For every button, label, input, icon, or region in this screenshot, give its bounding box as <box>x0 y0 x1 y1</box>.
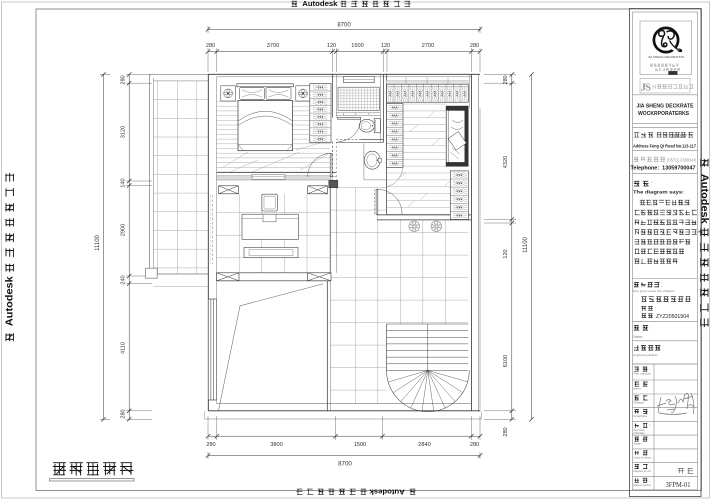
svg-text:JIA SHENG DECKRATE: JIA SHENG DECKRATE <box>637 103 694 109</box>
svg-text:1500: 1500 <box>351 43 363 49</box>
svg-text:Part number:: Part number: <box>634 372 652 376</box>
svg-text:3800: 3800 <box>270 442 282 448</box>
svg-text:2900: 2900 <box>121 224 127 236</box>
svg-text:120: 120 <box>381 43 390 49</box>
svg-text:Diagram do not:: Diagram do not: <box>634 469 652 473</box>
svg-text:Item:: Item: <box>634 387 642 391</box>
svg-text:JS: JS <box>641 82 652 94</box>
svg-text:1500: 1500 <box>354 442 366 448</box>
svg-text:280: 280 <box>206 43 215 49</box>
svg-text:280: 280 <box>503 75 509 84</box>
svg-text:WOCKRPORATERKS: WOCKRPORATERKS <box>638 111 689 117</box>
svg-text:120: 120 <box>503 249 509 258</box>
svg-text:280: 280 <box>121 409 127 418</box>
svg-text:8700: 8700 <box>337 23 351 29</box>
svg-text:280: 280 <box>206 442 215 448</box>
svg-text:Autodesk: Autodesk <box>302 0 337 8</box>
svg-text:280: 280 <box>470 442 479 448</box>
svg-text:officially:: officially: <box>634 431 646 435</box>
svg-text:Diagram number:: Diagram number: <box>634 483 652 487</box>
svg-text:Autodesk: Autodesk <box>5 276 16 326</box>
svg-text:2700: 2700 <box>422 43 434 49</box>
svg-text:Date:: Date: <box>634 442 642 446</box>
svg-text:280: 280 <box>470 43 479 49</box>
svg-text:3FPM-01: 3FPM-01 <box>666 481 691 489</box>
svg-text:Union for fame:: Union for fame: <box>634 455 652 459</box>
svg-text:8700: 8700 <box>338 461 352 468</box>
svg-text:ZYZ20501904: ZYZ20501904 <box>656 314 689 320</box>
svg-text:4320: 4320 <box>503 156 509 168</box>
svg-text:Graphics:: Graphics: <box>634 414 649 418</box>
svg-text:3120: 3120 <box>121 126 127 138</box>
svg-text:11100: 11100 <box>523 236 529 252</box>
svg-text:240: 240 <box>121 275 127 284</box>
svg-text:280: 280 <box>503 427 509 436</box>
svg-text:Design:: Design: <box>634 400 645 404</box>
svg-text:Telephone: 13059700047: Telephone: 13059700047 <box>631 166 696 172</box>
svg-text:113-117: 113-117 <box>671 133 688 138</box>
svg-text:Autodesk: Autodesk <box>369 488 404 496</box>
svg-text:(0570) 2389348: (0570) 2389348 <box>667 158 696 164</box>
svg-text:Name:: Name: <box>634 335 644 339</box>
svg-text:Autodesk: Autodesk <box>698 174 709 224</box>
svg-text:2840: 2840 <box>418 442 430 448</box>
svg-text:Des gn to cover the chapter:: Des gn to cover the chapter: <box>633 289 675 293</box>
svg-text:Address Feng Qi Road No.113-11: Address Feng Qi Road No.113-117 <box>633 143 697 148</box>
svg-text:JIA SHENG DECORATION: JIA SHENG DECORATION <box>648 55 684 59</box>
svg-text:3700: 3700 <box>267 43 279 49</box>
svg-text:6100: 6100 <box>503 355 509 367</box>
svg-text:140: 140 <box>121 178 127 187</box>
svg-text:11100: 11100 <box>95 234 101 250</box>
svg-text:120: 120 <box>327 43 336 49</box>
svg-text:4110: 4110 <box>121 342 127 354</box>
svg-text:280: 280 <box>121 75 127 84</box>
svg-text:The diagram says:: The diagram says: <box>633 189 685 194</box>
svg-text:Engineering address: Engineering address <box>634 353 659 357</box>
